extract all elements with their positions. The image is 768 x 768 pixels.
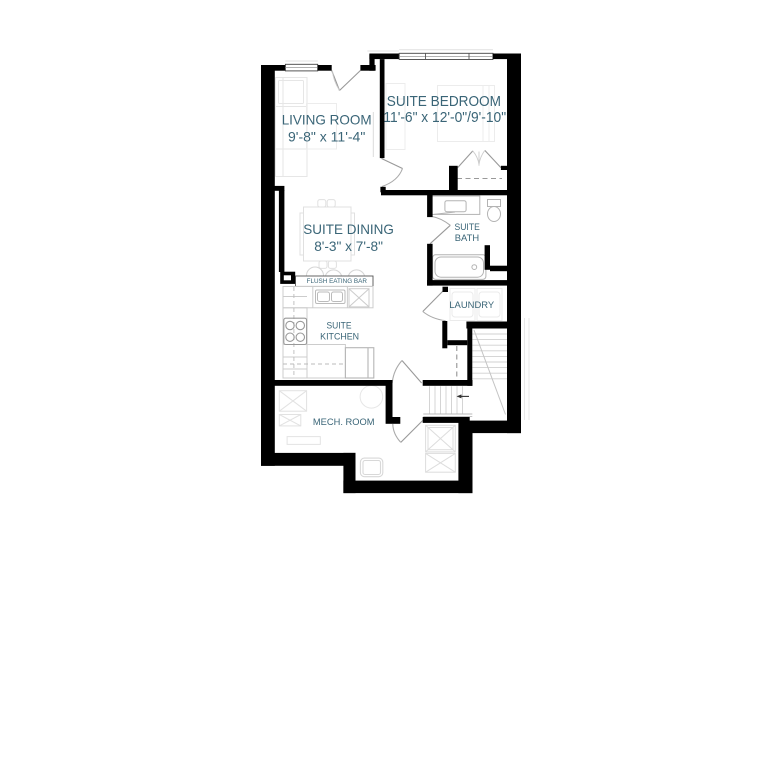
svg-text:BATH: BATH: [455, 233, 479, 243]
svg-text:11'-6" x 12'-0"/9'-10": 11'-6" x 12'-0"/9'-10": [383, 109, 506, 126]
svg-text:9'-8" x 11'-4": 9'-8" x 11'-4": [288, 129, 365, 145]
svg-text:KITCHEN: KITCHEN: [320, 331, 359, 341]
svg-text:LAUNDRY: LAUNDRY: [449, 300, 494, 311]
svg-text:SUITE BEDROOM: SUITE BEDROOM: [387, 93, 501, 110]
svg-text:SUITE: SUITE: [327, 320, 352, 330]
svg-text:FLUSH EATING BAR: FLUSH EATING BAR: [307, 278, 368, 285]
svg-text:SUITE DINING: SUITE DINING: [303, 221, 394, 237]
svg-text:SUITE: SUITE: [455, 222, 480, 232]
svg-text:MECH. ROOM: MECH. ROOM: [313, 417, 375, 427]
svg-text:8'-3" x 7'-8": 8'-3" x 7'-8": [314, 238, 383, 254]
svg-text:LIVING ROOM: LIVING ROOM: [282, 112, 372, 128]
